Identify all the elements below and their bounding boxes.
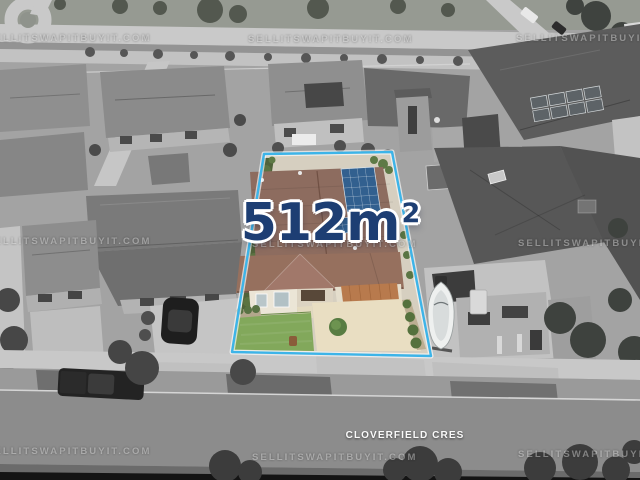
watermark: SELLITSWAPITBUYIT.COM	[518, 449, 640, 460]
lawn-ornament	[289, 336, 297, 346]
cart	[470, 290, 487, 314]
watermark: SELLITSWAPITBUYIT.COM	[0, 33, 152, 44]
watermark: SELLITSWAPITBUYIT.COM	[516, 33, 640, 44]
black-car	[160, 297, 199, 345]
front-door-window	[274, 292, 289, 307]
watermark: SELLITSWAPITBUYIT.COM	[518, 238, 640, 249]
watermark: SELLITSWAPITBUYIT.COM	[252, 452, 418, 463]
porch-opening	[301, 290, 325, 301]
property-aerial-image: SELLITSWAPITBUYIT.COM SELLITSWAPITBUYIT.…	[0, 0, 640, 480]
roof-vent	[578, 200, 596, 213]
land-area-value: 512m	[241, 193, 400, 253]
front-window	[256, 294, 267, 307]
land-area-label: 512m2	[235, 197, 425, 249]
land-area-superscript: 2	[401, 198, 419, 229]
watermark: SELLITSWAPITBUYIT.COM	[0, 446, 152, 457]
watermark: SELLITSWAPITBUYIT.COM	[0, 236, 152, 247]
street-name-label: CLOVERFIELD CRES	[330, 430, 480, 441]
watermark: SELLITSWAPITBUYIT.COM	[248, 34, 414, 45]
